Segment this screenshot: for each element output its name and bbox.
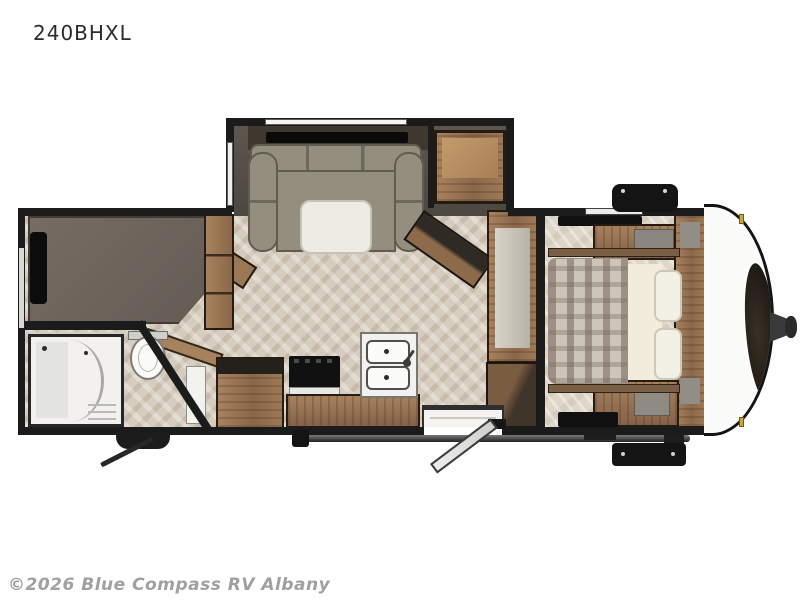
front-cap — [704, 204, 774, 436]
step-box-rail — [584, 434, 616, 440]
slide-right-wall — [506, 118, 514, 212]
sink-drain-1 — [384, 349, 389, 354]
entry-step-line — [430, 417, 496, 419]
pantry-door — [495, 228, 530, 348]
propane-cover-bolt-right — [663, 189, 667, 193]
slide-cabinet-wall — [428, 122, 434, 208]
queen-bed-plaid — [548, 258, 628, 384]
range-knobs — [294, 359, 336, 363]
top-wall-left — [18, 208, 232, 216]
shower-head — [42, 346, 47, 351]
slide-window — [265, 119, 407, 125]
clearance-light-bottom — [739, 417, 744, 427]
sink-drain-2 — [384, 375, 389, 380]
awning — [300, 435, 690, 442]
bedroom-wall — [537, 212, 545, 427]
bedroom-bottom-cabinet-panel — [634, 390, 670, 416]
pillow-2 — [654, 328, 682, 380]
clearance-light-top — [739, 214, 744, 224]
brand-logo — [740, 262, 774, 402]
bunk-bed — [28, 216, 216, 324]
wardrobe-panel-top — [680, 222, 700, 248]
tv — [266, 132, 408, 143]
sofa-blanket — [300, 200, 372, 254]
slide-cabinet-top — [442, 138, 498, 178]
slide-side-window — [227, 142, 233, 206]
sofa-left-arm — [248, 152, 278, 252]
wardrobe-panel-bottom — [680, 378, 700, 404]
watermark: ©2026 Blue Compass RV Albany — [8, 575, 330, 595]
kitchen-base-cabinet — [286, 394, 420, 428]
refrigerator-top — [218, 359, 282, 374]
bed-head-rail — [548, 248, 680, 257]
shower-step-lines — [88, 400, 116, 420]
step-box-bolt-left — [621, 452, 625, 456]
left-wall-window — [19, 248, 24, 328]
awning-end-cap — [292, 430, 309, 447]
propane-cover-bolt-left — [621, 189, 625, 193]
bunk-wardrobe — [204, 214, 234, 330]
pillow-1 — [654, 270, 682, 322]
hitch-ball — [785, 316, 797, 338]
bed-foot-rail — [548, 384, 680, 393]
step-box-bolt-right — [671, 452, 675, 456]
bedroom-vent — [558, 412, 618, 427]
bath-wall — [24, 321, 146, 330]
model-label: 240BHXL — [33, 21, 132, 45]
floorplan-canvas: 240BHXL ©2026 Blue Compass RV Albany — [0, 0, 800, 600]
bunk-window — [30, 232, 47, 304]
shower-drain — [84, 351, 88, 355]
